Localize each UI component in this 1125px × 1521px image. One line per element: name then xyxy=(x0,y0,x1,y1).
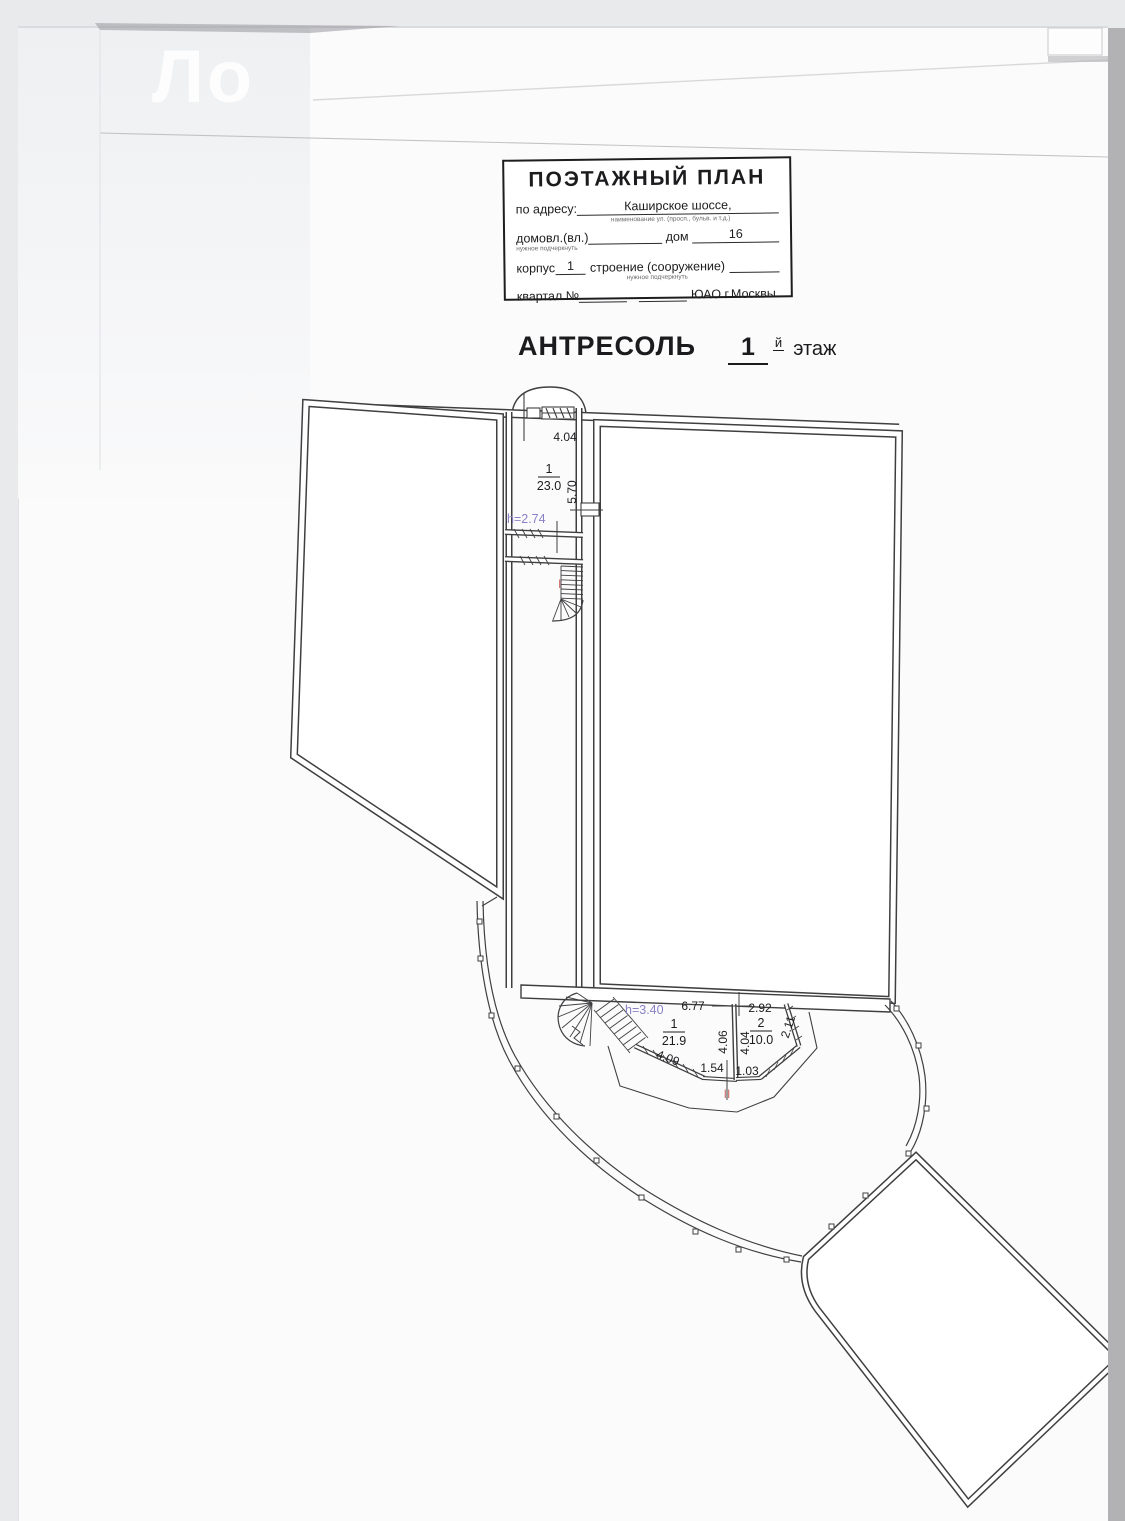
shaft-side-window xyxy=(570,503,603,516)
right-scan-strip xyxy=(1108,28,1125,1521)
dim-room1-width: 6.77 xyxy=(681,999,705,1013)
lower-ceiling-height: h=3.40 xyxy=(625,1003,664,1017)
stair-mark-2: II xyxy=(724,1087,731,1101)
upper-ceiling-height: h=2.74 xyxy=(507,512,546,526)
corner-notch xyxy=(482,897,497,906)
dim-room2-width: 2.92 xyxy=(748,1001,772,1015)
dim-upper-depth: 5.70 xyxy=(565,480,579,504)
lower-room2-area: 10.0 xyxy=(749,1033,773,1047)
rotated-room xyxy=(804,1156,1120,1503)
dim-room1-depth: 4.06 xyxy=(716,1030,730,1054)
lower-room1-area: 21.9 xyxy=(662,1034,686,1048)
dim-room1-door: 1.54 xyxy=(700,1061,724,1075)
stair-mark-1: I xyxy=(558,577,561,591)
dim-upper-width: 4.04 xyxy=(553,430,577,444)
lower-room2-number: 2 xyxy=(758,1016,765,1030)
shaft-partition-2 xyxy=(505,556,583,565)
upper-room-area: 23.0 xyxy=(537,479,561,493)
large-room xyxy=(597,423,899,1000)
upper-room-number: 1 xyxy=(546,462,553,476)
dim-room2-depth: 4.04 xyxy=(738,1031,752,1055)
lower-room1-number: 1 xyxy=(671,1017,678,1031)
dim-room2-door: 1.03 xyxy=(735,1064,759,1078)
left-wing-room xyxy=(294,403,500,906)
floor-plan-drawing: 4.04 1 23.0 5.70 h=2.74 I h=3.40 6.77 2.… xyxy=(0,0,1125,1521)
scanned-floor-plan-page: Ло ПОЭТАЖНЫЙ ПЛАН по адресу: Каширское ш… xyxy=(0,0,1125,1521)
